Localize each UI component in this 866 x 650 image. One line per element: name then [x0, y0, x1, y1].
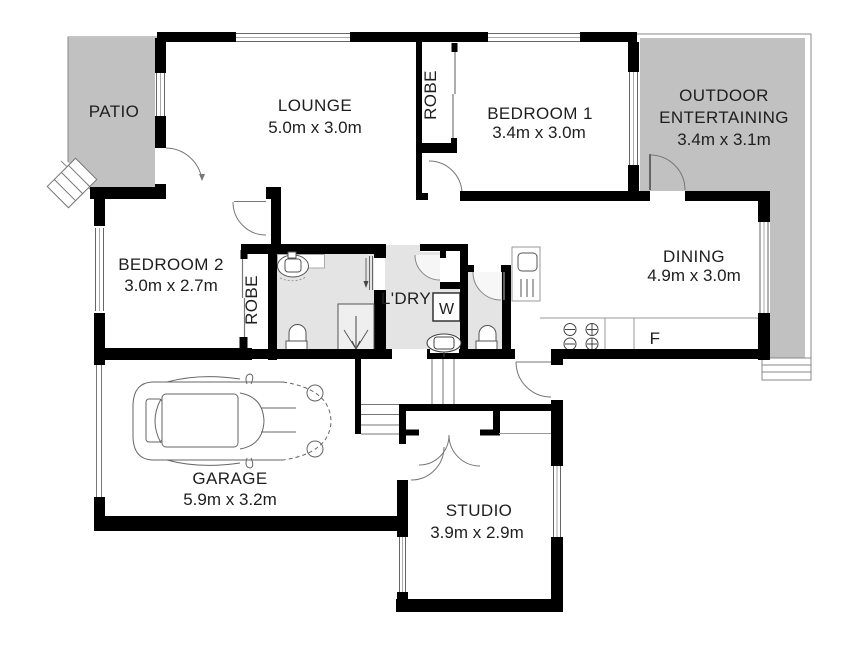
svg-text:5.0m x 3.0m: 5.0m x 3.0m	[268, 118, 362, 137]
svg-text:STUDIO: STUDIO	[446, 501, 513, 520]
svg-text:3.4m x 3.1m: 3.4m x 3.1m	[677, 130, 771, 149]
svg-text:W: W	[439, 301, 455, 318]
svg-text:OUTDOOR: OUTDOOR	[679, 86, 769, 105]
svg-text:3.4m x 3.0m: 3.4m x 3.0m	[492, 123, 586, 142]
svg-text:ROBE: ROBE	[421, 70, 440, 120]
svg-text:5.9m x 3.2m: 5.9m x 3.2m	[183, 490, 277, 509]
svg-text:GARAGE: GARAGE	[192, 469, 267, 488]
svg-text:PATIO: PATIO	[89, 102, 140, 121]
svg-text:LOUNGE: LOUNGE	[278, 96, 352, 115]
svg-text:BEDROOM 2: BEDROOM 2	[118, 255, 224, 274]
svg-text:ROBE: ROBE	[242, 275, 261, 325]
svg-text:4.9m x 3.0m: 4.9m x 3.0m	[647, 266, 741, 285]
svg-text:BEDROOM 1: BEDROOM 1	[487, 104, 593, 123]
svg-text:L'DRY: L'DRY	[381, 289, 431, 308]
svg-text:F: F	[650, 329, 661, 348]
svg-text:3.0m x 2.7m: 3.0m x 2.7m	[124, 276, 218, 295]
svg-text:ENTERTAINING: ENTERTAINING	[659, 108, 789, 127]
svg-text:3.9m x 2.9m: 3.9m x 2.9m	[430, 523, 524, 542]
svg-text:DINING: DINING	[663, 247, 725, 266]
